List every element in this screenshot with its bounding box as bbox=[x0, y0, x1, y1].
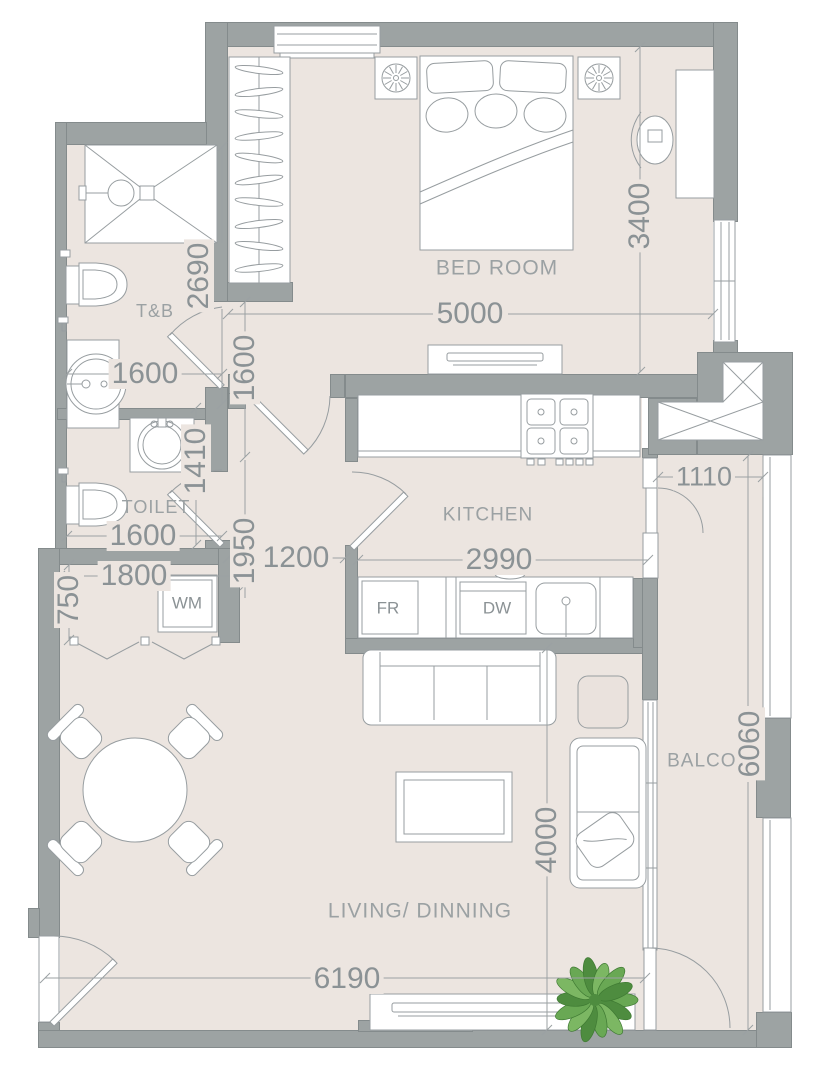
entry-threshold bbox=[39, 936, 59, 1022]
desk bbox=[676, 70, 714, 198]
dim-kitchen-width: 2990 bbox=[463, 545, 536, 575]
appliance-label-fr: FR bbox=[377, 600, 400, 617]
dim-bedroom-width: 5000 bbox=[434, 299, 507, 329]
dim-closet-width: 1800 bbox=[98, 561, 171, 591]
dim-balcony-top-width: 1110 bbox=[673, 464, 735, 491]
door-balcony-living bbox=[644, 948, 730, 1030]
door-balcony-kitchen bbox=[646, 488, 703, 533]
stove bbox=[521, 394, 593, 465]
appliance-label-wm: WM bbox=[172, 595, 202, 612]
window-top bbox=[274, 26, 380, 58]
dining-table bbox=[83, 738, 187, 842]
tap-icon-tb bbox=[58, 317, 68, 331]
bifold-doors bbox=[70, 637, 220, 659]
coffee-table bbox=[396, 772, 512, 842]
desk-chair bbox=[631, 112, 673, 168]
dim-tb-height: 2690 bbox=[184, 240, 214, 313]
dim-hall-width: 1200 bbox=[260, 543, 333, 573]
side-table bbox=[578, 676, 628, 728]
dim-living-depth: 4000 bbox=[532, 804, 562, 877]
floor-plan: BED ROOM T&B TOILET KITCHEN LIVING/ DINN… bbox=[0, 0, 829, 1080]
dim-bedroom-depth: 3400 bbox=[625, 180, 655, 253]
bed bbox=[420, 56, 573, 250]
ceiling-fan-icon-right bbox=[578, 57, 620, 99]
room-label-living: LIVING/ DINNING bbox=[328, 901, 512, 922]
door-kitchen bbox=[350, 472, 408, 550]
kitchen-counter-top bbox=[358, 395, 640, 457]
dining-set bbox=[45, 702, 224, 877]
toilet-wc-tb bbox=[60, 250, 127, 306]
door-bedroom bbox=[248, 394, 330, 454]
dim-hall-segment: 1600 bbox=[230, 332, 260, 405]
dim-tb-width: 1600 bbox=[109, 359, 182, 389]
dim-closet-depth: 750 bbox=[54, 572, 84, 628]
armchair bbox=[570, 738, 646, 888]
service-shaft bbox=[658, 362, 763, 440]
dim-toilet-depth: 1410 bbox=[181, 425, 211, 498]
balcony-railing bbox=[763, 455, 791, 1012]
room-label-toilet: TOILET bbox=[122, 498, 191, 516]
shower bbox=[79, 145, 217, 243]
sofa bbox=[363, 650, 556, 725]
room-label-bedroom: BED ROOM bbox=[436, 258, 558, 279]
window-bedroom-right bbox=[714, 220, 735, 342]
tv-console-bedroom bbox=[428, 345, 562, 374]
toilet-wc bbox=[58, 468, 127, 526]
dim-hall-length: 1950 bbox=[230, 515, 260, 588]
dim-living-width: 6190 bbox=[311, 964, 384, 994]
door-entry bbox=[50, 936, 117, 1026]
wardrobe bbox=[229, 57, 290, 283]
dim-balcony-length: 6060 bbox=[735, 708, 765, 781]
room-label-kitchen: KITCHEN bbox=[443, 506, 533, 525]
room-label-tb: T&B bbox=[136, 302, 174, 320]
ceiling-fan-icon-left bbox=[375, 57, 417, 99]
dim-toilet-width: 1600 bbox=[107, 521, 180, 551]
appliance-label-dw: DW bbox=[483, 600, 511, 617]
